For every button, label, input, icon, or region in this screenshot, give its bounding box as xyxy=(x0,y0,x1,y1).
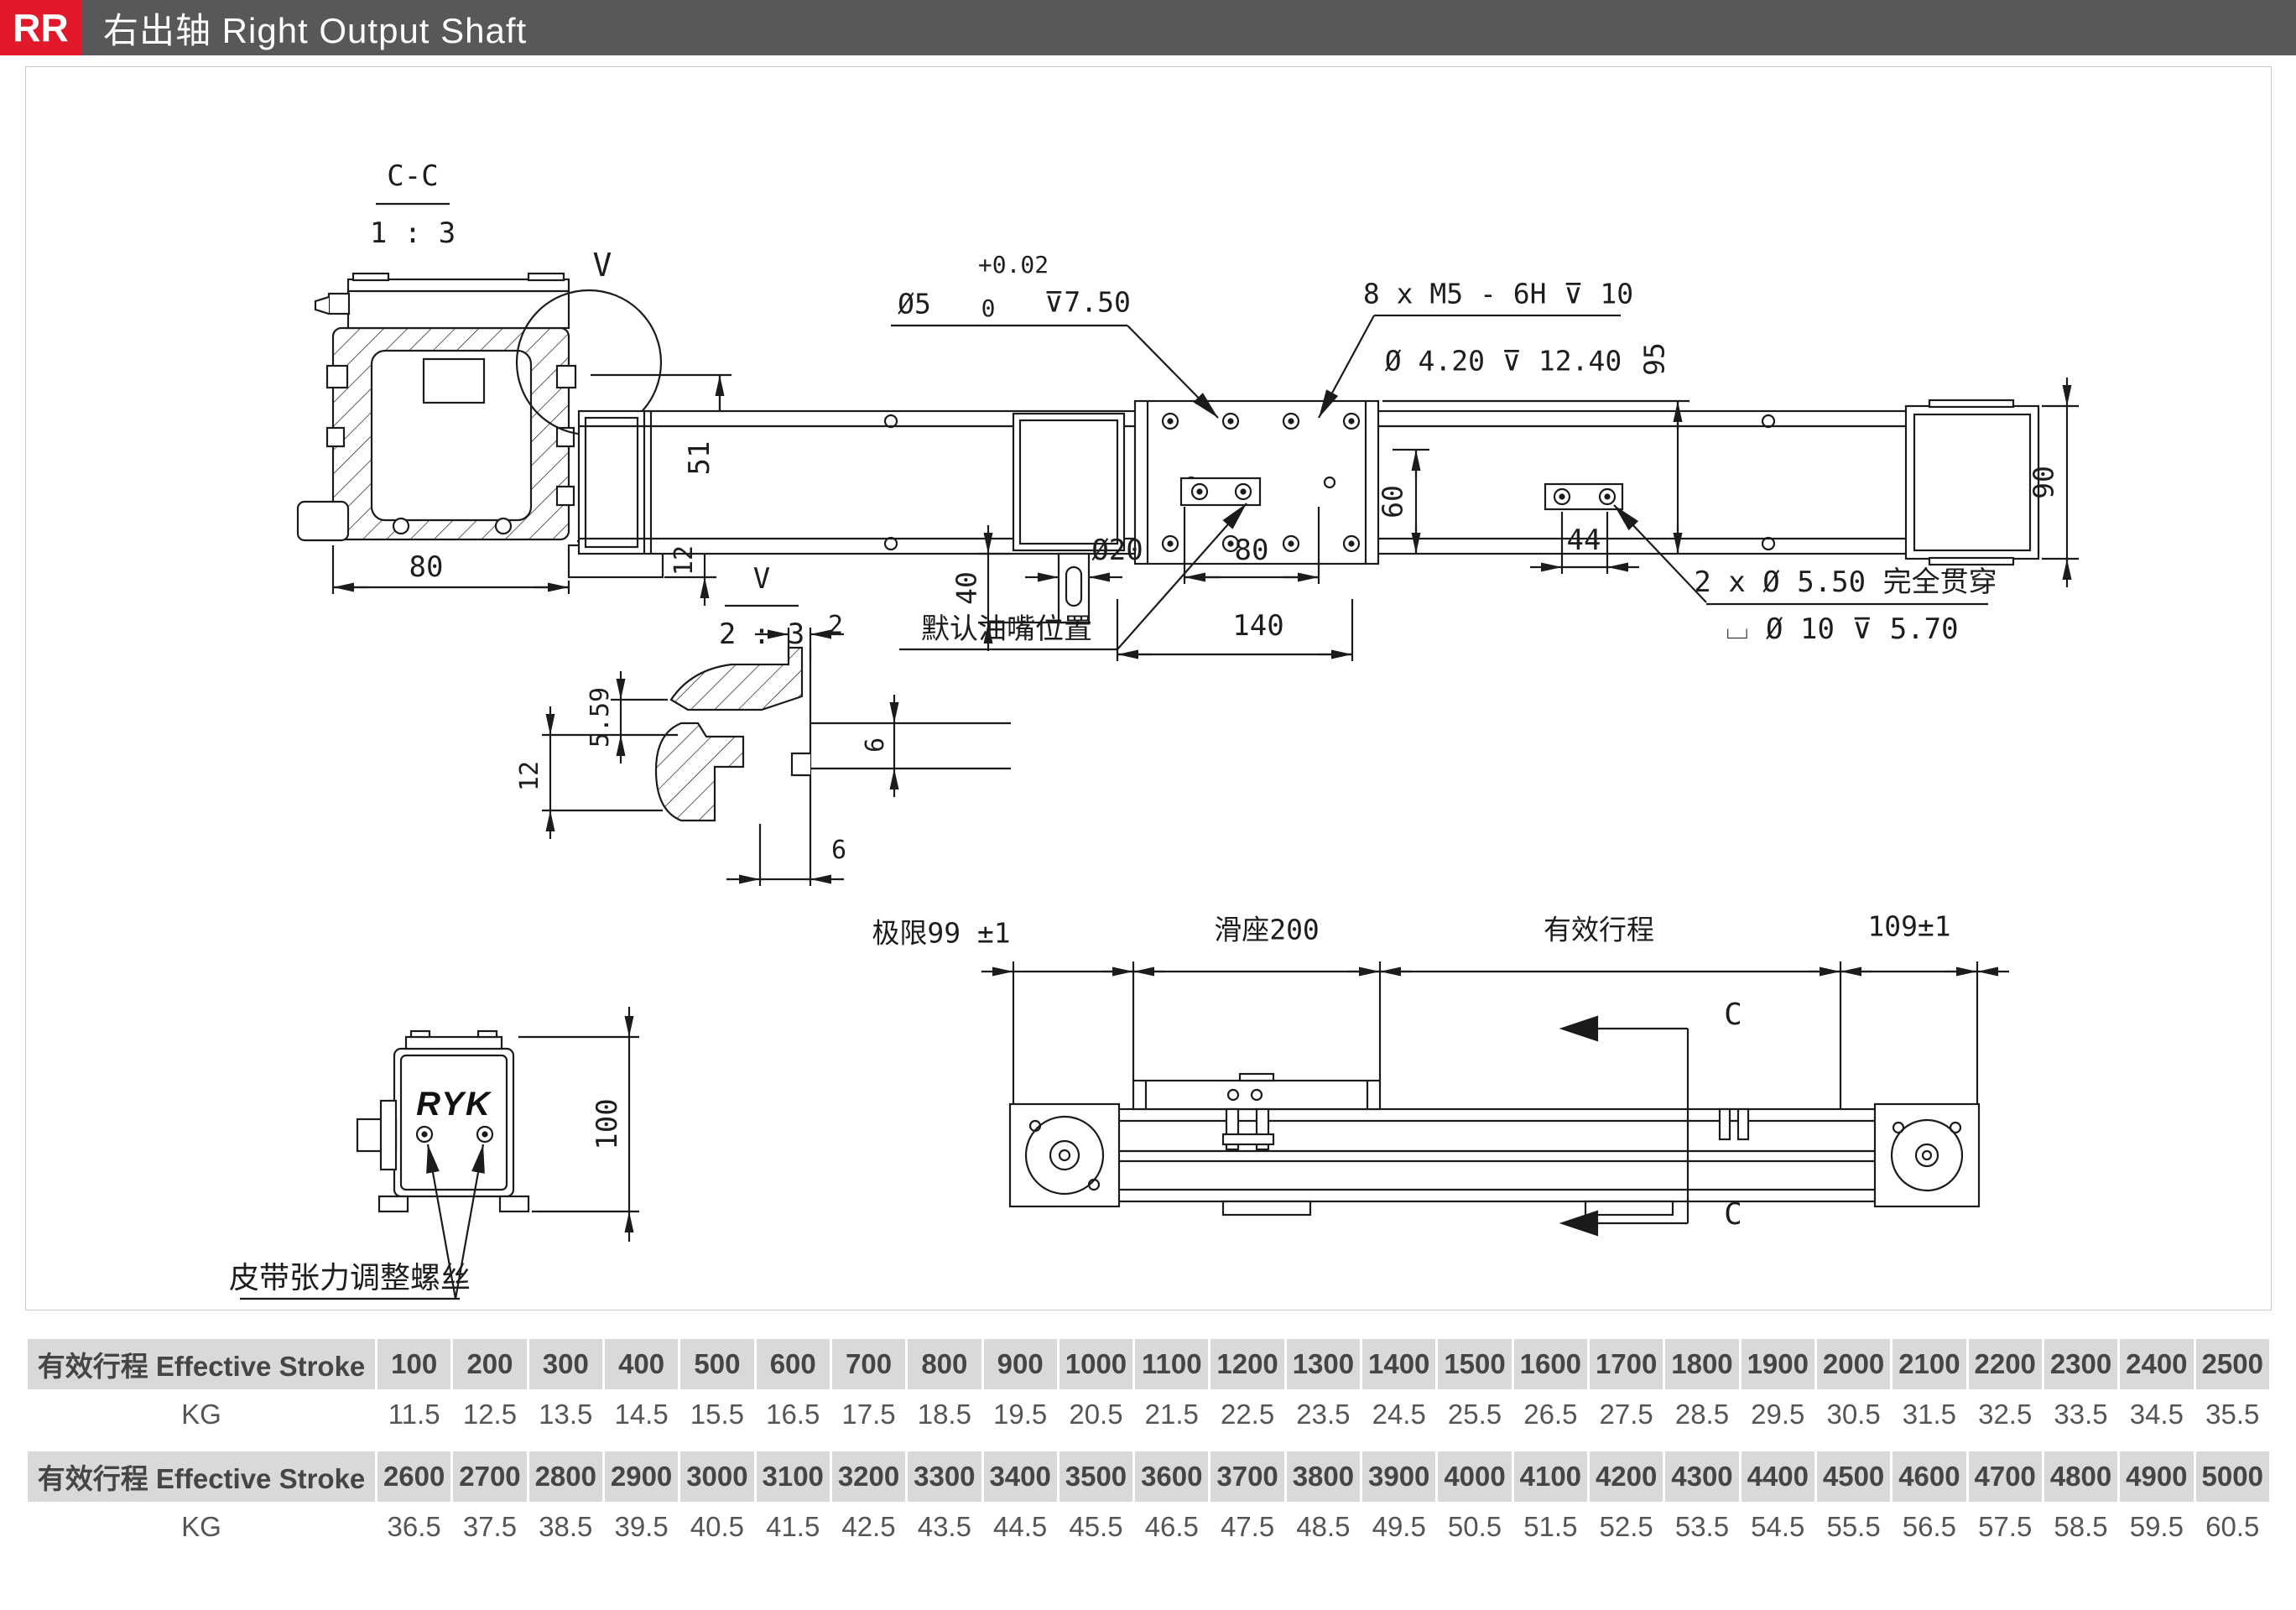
stroke-value-cell: 800 xyxy=(908,1339,981,1389)
stroke-value-cell: 3600 xyxy=(1135,1451,1208,1502)
stroke-value-cell: 2400 xyxy=(2120,1339,2193,1389)
load-value-cell: 57.5 xyxy=(1969,1502,2042,1552)
stroke-value-cell: 4900 xyxy=(2120,1451,2193,1502)
load-value-cell: 14.5 xyxy=(605,1389,678,1440)
stroke-value-cell: 4500 xyxy=(1817,1451,1890,1502)
stroke-value-cell: 3700 xyxy=(1210,1451,1283,1502)
stroke-value-cell: 100 xyxy=(377,1339,450,1389)
stroke-value-cell: 700 xyxy=(832,1339,905,1389)
stroke-value-cell: 3800 xyxy=(1287,1451,1360,1502)
load-value-cell: 11.5 xyxy=(377,1389,450,1440)
stroke-value-cell: 2300 xyxy=(2044,1339,2117,1389)
stroke-value-cell: 400 xyxy=(605,1339,678,1389)
load-value-cell: 41.5 xyxy=(757,1502,830,1552)
load-value-cell: 36.5 xyxy=(377,1502,450,1552)
load-value-cell: 23.5 xyxy=(1287,1389,1360,1440)
stroke-value-cell: 1300 xyxy=(1287,1339,1360,1389)
load-value-cell: 31.5 xyxy=(1893,1389,1965,1440)
stroke-value-cell: 2200 xyxy=(1969,1339,2042,1389)
load-value-cell: 49.5 xyxy=(1362,1502,1435,1552)
load-value-cell: 13.5 xyxy=(529,1389,602,1440)
stroke-value-cell: 1400 xyxy=(1362,1339,1435,1389)
load-value-cell: 52.5 xyxy=(1590,1502,1663,1552)
stroke-value-cell: 900 xyxy=(984,1339,1057,1389)
stroke-value-cell: 2000 xyxy=(1817,1339,1890,1389)
stroke-load-table-2: 有效行程 Effective Stroke2600270028002900300… xyxy=(25,1451,2272,1552)
stroke-value-cell: 1800 xyxy=(1665,1339,1738,1389)
load-value-cell: 38.5 xyxy=(529,1502,602,1552)
load-value-cell: 35.5 xyxy=(2196,1389,2270,1440)
stroke-header-label: 有效行程 Effective Stroke xyxy=(28,1451,375,1502)
stroke-value-cell: 2600 xyxy=(377,1451,450,1502)
load-value-cell: 12.5 xyxy=(453,1389,526,1440)
stroke-value-cell: 1900 xyxy=(1742,1339,1814,1389)
load-value-cell: 45.5 xyxy=(1059,1502,1132,1552)
stroke-value-cell: 4600 xyxy=(1893,1451,1965,1502)
load-value-cell: 16.5 xyxy=(757,1389,830,1440)
load-value-cell: 40.5 xyxy=(680,1502,753,1552)
stroke-value-cell: 2500 xyxy=(2196,1339,2270,1389)
load-value-cell: 37.5 xyxy=(453,1502,526,1552)
stroke-load-tables: 有效行程 Effective Stroke1002003004005006007… xyxy=(25,1339,2272,1564)
load-value-cell: 39.5 xyxy=(605,1502,678,1552)
stroke-value-cell: 1500 xyxy=(1438,1339,1511,1389)
stroke-value-cell: 4000 xyxy=(1438,1451,1511,1502)
load-row: KG36.537.538.539.540.541.542.543.544.545… xyxy=(28,1502,2269,1552)
load-value-cell: 42.5 xyxy=(832,1502,905,1552)
stroke-value-cell: 2800 xyxy=(529,1451,602,1502)
load-value-cell: 28.5 xyxy=(1665,1389,1738,1440)
load-value-cell: 27.5 xyxy=(1590,1389,1663,1440)
stroke-value-cell: 1000 xyxy=(1059,1339,1132,1389)
load-value-cell: 34.5 xyxy=(2120,1389,2193,1440)
stroke-value-cell: 4200 xyxy=(1590,1451,1663,1502)
datasheet-page: RR 右出轴 Right Output Shaft xyxy=(0,0,2296,1610)
load-value-cell: 47.5 xyxy=(1210,1502,1283,1552)
stroke-value-cell: 2100 xyxy=(1893,1339,1965,1389)
stroke-value-cell: 4700 xyxy=(1969,1451,2042,1502)
stroke-value-cell: 3900 xyxy=(1362,1451,1435,1502)
load-unit-label: KG xyxy=(28,1502,375,1552)
stroke-header-row: 有效行程 Effective Stroke2600270028002900300… xyxy=(28,1451,2269,1502)
motor-end-view xyxy=(357,1031,528,1211)
load-value-cell: 29.5 xyxy=(1742,1389,1814,1440)
stroke-load-table-1: 有效行程 Effective Stroke1002003004005006007… xyxy=(25,1339,2272,1440)
load-value-cell: 33.5 xyxy=(2044,1389,2117,1440)
stroke-value-cell: 1700 xyxy=(1590,1339,1663,1389)
stroke-value-cell: 3400 xyxy=(984,1451,1057,1502)
load-value-cell: 19.5 xyxy=(984,1389,1057,1440)
load-value-cell: 43.5 xyxy=(908,1502,981,1552)
load-row: KG11.512.513.514.515.516.517.518.519.520… xyxy=(28,1389,2269,1440)
load-value-cell: 54.5 xyxy=(1742,1502,1814,1552)
stroke-value-cell: 5000 xyxy=(2196,1451,2270,1502)
stroke-value-cell: 4100 xyxy=(1514,1451,1587,1502)
load-value-cell: 30.5 xyxy=(1817,1389,1890,1440)
stroke-header-label: 有效行程 Effective Stroke xyxy=(28,1339,375,1389)
stroke-value-cell: 4400 xyxy=(1742,1451,1814,1502)
stroke-header-row: 有效行程 Effective Stroke1002003004005006007… xyxy=(28,1339,2269,1389)
load-value-cell: 21.5 xyxy=(1135,1389,1208,1440)
load-value-cell: 24.5 xyxy=(1362,1389,1435,1440)
load-value-cell: 56.5 xyxy=(1893,1502,1965,1552)
stroke-value-cell: 2700 xyxy=(453,1451,526,1502)
stroke-value-cell: 4300 xyxy=(1665,1451,1738,1502)
load-value-cell: 20.5 xyxy=(1059,1389,1132,1440)
load-value-cell: 55.5 xyxy=(1817,1502,1890,1552)
load-value-cell: 58.5 xyxy=(2044,1502,2117,1552)
stroke-value-cell: 3000 xyxy=(680,1451,753,1502)
side-view xyxy=(1010,1074,1979,1215)
stroke-value-cell: 600 xyxy=(757,1339,830,1389)
v-detail-view xyxy=(656,606,1011,881)
stroke-value-cell: 200 xyxy=(453,1339,526,1389)
load-value-cell: 60.5 xyxy=(2196,1502,2270,1552)
stroke-value-cell: 300 xyxy=(529,1339,602,1389)
stroke-value-cell: 1100 xyxy=(1135,1339,1208,1389)
load-value-cell: 50.5 xyxy=(1438,1502,1511,1552)
stroke-value-cell: 1600 xyxy=(1514,1339,1587,1389)
load-value-cell: 51.5 xyxy=(1514,1502,1587,1552)
load-value-cell: 53.5 xyxy=(1665,1502,1738,1552)
load-value-cell: 26.5 xyxy=(1514,1389,1587,1440)
stroke-value-cell: 3200 xyxy=(832,1451,905,1502)
stroke-value-cell: 3500 xyxy=(1059,1451,1132,1502)
stroke-value-cell: 1200 xyxy=(1210,1339,1283,1389)
load-value-cell: 32.5 xyxy=(1969,1389,2042,1440)
stroke-value-cell: 4800 xyxy=(2044,1451,2117,1502)
load-value-cell: 48.5 xyxy=(1287,1502,1360,1552)
load-value-cell: 44.5 xyxy=(984,1502,1057,1552)
load-value-cell: 15.5 xyxy=(680,1389,753,1440)
stroke-value-cell: 500 xyxy=(680,1339,753,1389)
stroke-value-cell: 3100 xyxy=(757,1451,830,1502)
stroke-value-cell: 2900 xyxy=(605,1451,678,1502)
load-unit-label: KG xyxy=(28,1389,375,1440)
load-value-cell: 59.5 xyxy=(2120,1502,2193,1552)
load-value-cell: 22.5 xyxy=(1210,1389,1283,1440)
load-value-cell: 25.5 xyxy=(1438,1389,1511,1440)
load-value-cell: 18.5 xyxy=(908,1389,981,1440)
load-value-cell: 17.5 xyxy=(832,1389,905,1440)
plan-view xyxy=(579,400,2038,623)
stroke-value-cell: 3300 xyxy=(908,1451,981,1502)
load-value-cell: 46.5 xyxy=(1135,1502,1208,1552)
